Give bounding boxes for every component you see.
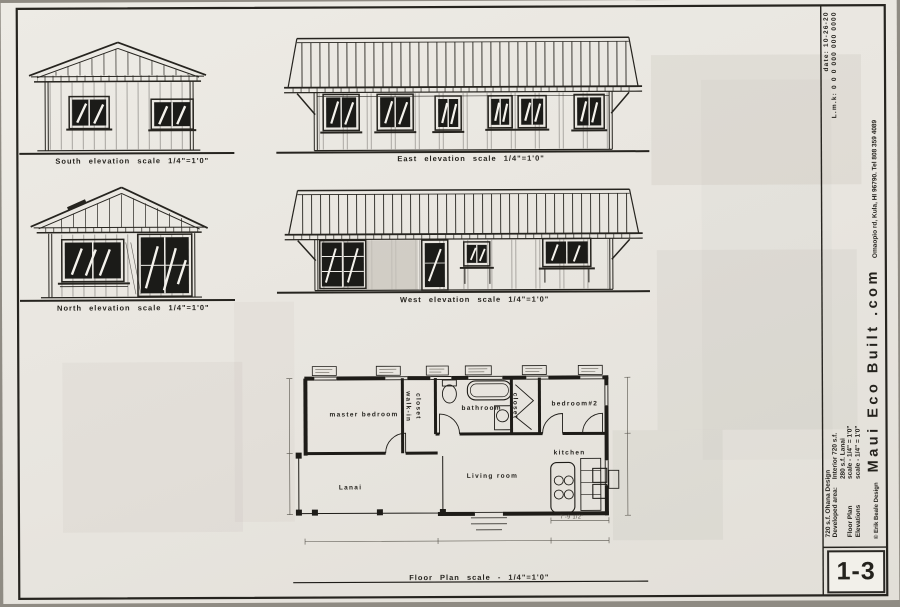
sheet-lmk: L.m.k: 0 0 0 000 000 0000: [831, 11, 839, 118]
south-elevation-drawing: [19, 42, 234, 154]
north-elevation-label: North elevation scale 1/4"=1'0": [57, 303, 210, 313]
room-label-closet2: closet: [511, 393, 518, 420]
room-label-walk-in-closet: closet: [414, 393, 421, 420]
west-elevation-drawing: [277, 189, 650, 293]
west-elevation-label: West elevation scale 1/4"=1'0": [400, 295, 549, 305]
east-elevation-drawing: [276, 37, 649, 153]
elevations-scale-label: Elevations: [854, 487, 862, 537]
title-block-date-info: date: 10-26-20 L.m.k: 0 0 0 000 000 0000: [823, 11, 860, 118]
south-elevation-label: South elevation scale 1/4"=1'0": [55, 156, 209, 166]
drawing-sheet: South elevation scale 1/4"=1'0" East ele…: [1, 0, 900, 604]
room-label-lanai: Lanai: [339, 484, 363, 491]
company-name: Maui Eco Built .com: [865, 268, 882, 472]
room-label-master-bedroom: master bedroom: [329, 411, 398, 418]
room-label-living-room: Living room: [467, 473, 519, 480]
north-elevation-drawing: [20, 187, 235, 301]
copyright-text: © Erik Beale Design: [874, 482, 880, 539]
room-label-walk-in: walk-in: [404, 391, 411, 422]
east-elevation-label: East elevation scale 1/4"=1'0": [397, 154, 544, 164]
elevations-scale: scale - 1/4" = 1'0": [854, 426, 862, 479]
room-label-kitchen: kitchen: [554, 449, 586, 456]
title-block: 720 s.f. Ohana Design Developed area: In…: [821, 7, 885, 545]
title-block-design-info: 720 s.f. Ohana Design Developed area: In…: [825, 426, 863, 538]
floor-plan-label: Floor Plan scale - 1/4"=1'0": [409, 573, 549, 583]
company-address: Omaopio rd, Kula, HI 96790. Tel 808 359 …: [871, 120, 879, 258]
room-label-bathroom: bathroom: [461, 405, 501, 412]
sheet-number: 1-3: [827, 550, 885, 593]
kitchen-dimension-label: 7'-9 1/2": [560, 514, 584, 520]
room-label-bedroom2: bedroom#2: [551, 400, 598, 407]
